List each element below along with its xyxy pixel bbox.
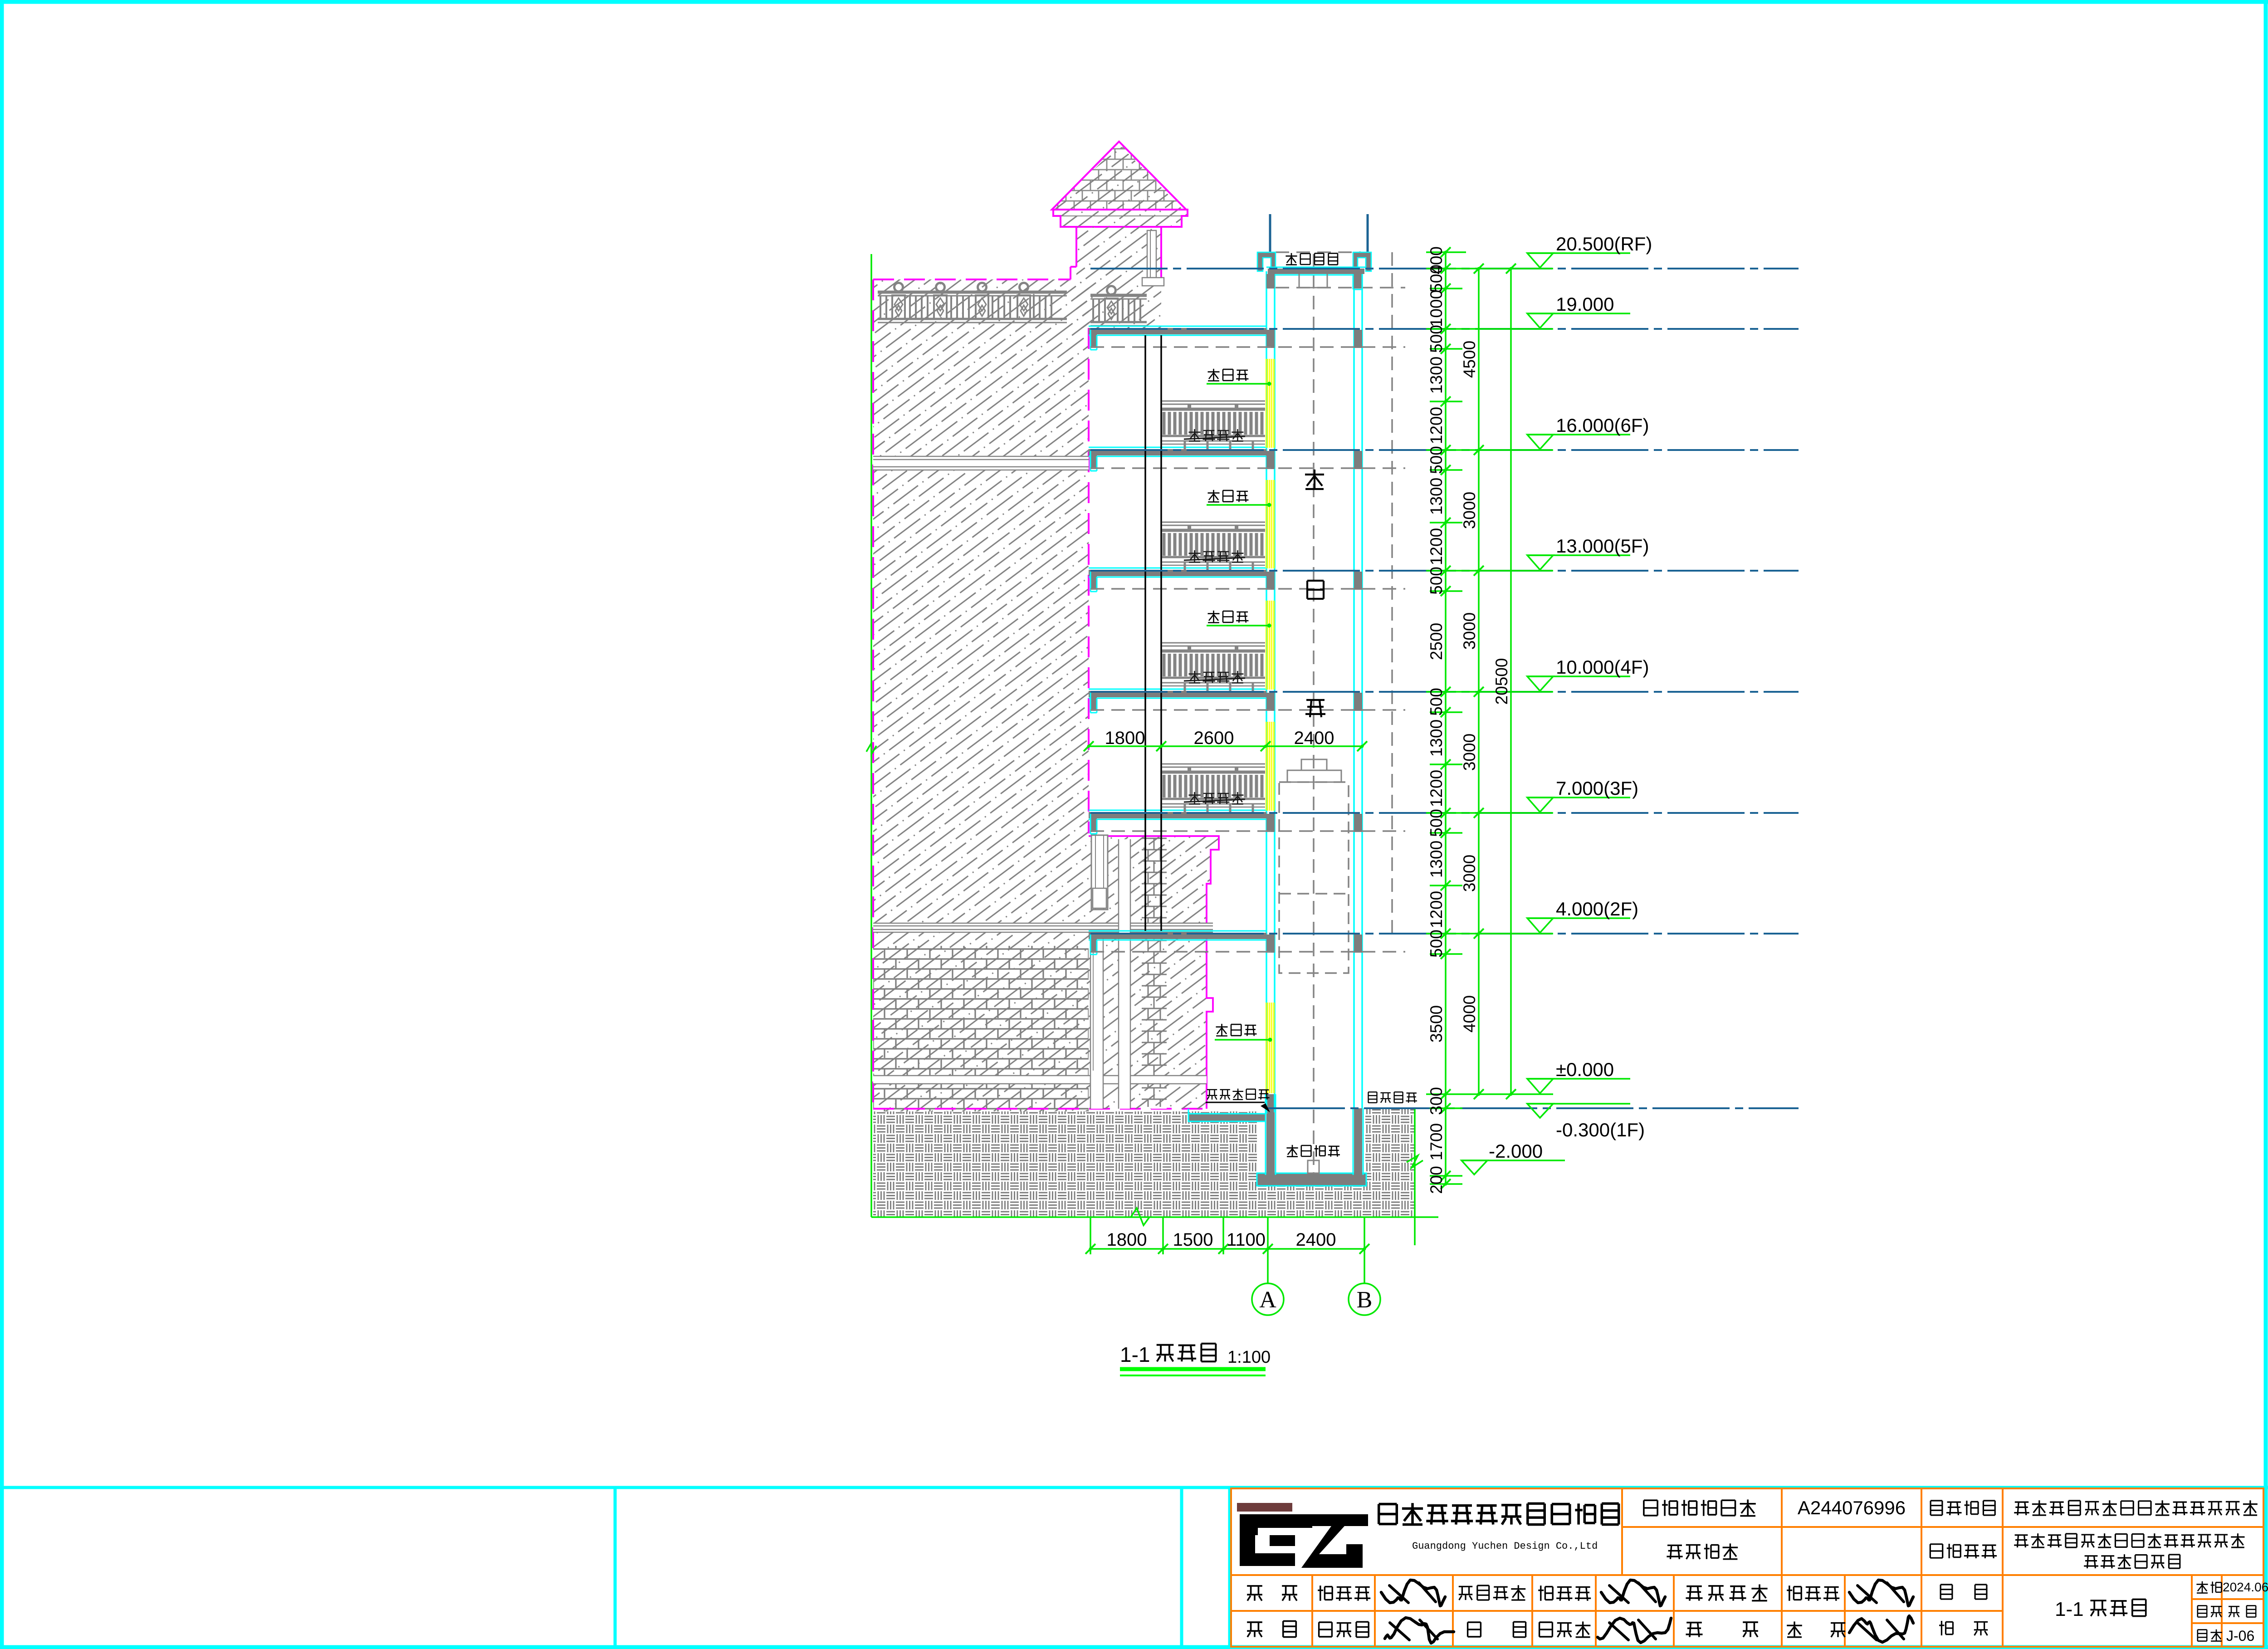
svg-text:19.000: 19.000	[1556, 294, 1614, 315]
svg-text:1-1: 1-1	[1120, 1343, 1150, 1366]
svg-text:10.000(4F): 10.000(4F)	[1556, 656, 1649, 678]
svg-text:2400: 2400	[1294, 728, 1334, 748]
svg-text:4.000(2F): 4.000(2F)	[1556, 898, 1638, 920]
svg-text:3000: 3000	[1460, 855, 1479, 892]
svg-text:500: 500	[1427, 446, 1446, 474]
svg-text:1700: 1700	[1427, 1123, 1446, 1160]
svg-text:1800: 1800	[1107, 1230, 1147, 1250]
svg-text:2400: 2400	[1296, 1230, 1336, 1250]
svg-text:1000: 1000	[1427, 290, 1446, 327]
svg-text:3000: 3000	[1460, 492, 1479, 529]
svg-text:1-1: 1-1	[2055, 1598, 2084, 1620]
svg-text:1300: 1300	[1427, 478, 1446, 515]
svg-text:±0.000: ±0.000	[1556, 1059, 1614, 1080]
svg-text:3000: 3000	[1460, 612, 1479, 650]
svg-text:13.000(5F): 13.000(5F)	[1556, 535, 1649, 557]
svg-text:500: 500	[1427, 930, 1446, 958]
svg-text:500: 500	[1427, 688, 1446, 716]
svg-text:A244076996: A244076996	[1798, 1497, 1906, 1518]
svg-text:1800: 1800	[1105, 728, 1145, 748]
svg-text:-0.300(1F): -0.300(1F)	[1556, 1119, 1645, 1140]
svg-text:20500: 20500	[1492, 658, 1511, 705]
svg-text:500: 500	[1427, 809, 1446, 837]
svg-text:500: 500	[1427, 264, 1446, 293]
svg-text:200: 200	[1427, 1166, 1446, 1194]
svg-text:1200: 1200	[1427, 407, 1446, 444]
svg-text:J-06: J-06	[2226, 1628, 2254, 1644]
svg-text:A: A	[1259, 1287, 1276, 1313]
svg-text:1500: 1500	[1173, 1230, 1213, 1250]
svg-text:7.000(3F): 7.000(3F)	[1556, 778, 1638, 799]
svg-text:1300: 1300	[1427, 357, 1446, 394]
svg-text:3500: 3500	[1427, 1005, 1446, 1042]
svg-text:1:100: 1:100	[1227, 1348, 1271, 1367]
svg-text:Guangdong Yuchen Design Co.,Lt: Guangdong Yuchen Design Co.,Ltd	[1412, 1541, 1598, 1552]
svg-text:500: 500	[1427, 325, 1446, 353]
svg-text:20.500(RF): 20.500(RF)	[1556, 233, 1652, 254]
svg-text:16.000(6F): 16.000(6F)	[1556, 415, 1649, 436]
svg-text:4500: 4500	[1460, 341, 1479, 378]
svg-text:300: 300	[1427, 1087, 1446, 1115]
svg-text:4000: 4000	[1460, 995, 1479, 1032]
svg-text:500: 500	[1427, 567, 1446, 595]
svg-text:2024.06: 2024.06	[2223, 1580, 2268, 1594]
svg-text:-2.000: -2.000	[1489, 1140, 1543, 1162]
svg-text:2600: 2600	[1194, 728, 1234, 748]
svg-text:3000: 3000	[1460, 734, 1479, 771]
svg-text:2500: 2500	[1427, 623, 1446, 660]
svg-text:1200: 1200	[1427, 528, 1446, 565]
svg-text:B: B	[1357, 1287, 1373, 1313]
svg-text:1200: 1200	[1427, 770, 1446, 807]
svg-text:1300: 1300	[1427, 719, 1446, 757]
svg-text:1200: 1200	[1427, 891, 1446, 928]
svg-text:1100: 1100	[1227, 1230, 1266, 1250]
svg-text:1300: 1300	[1427, 841, 1446, 878]
